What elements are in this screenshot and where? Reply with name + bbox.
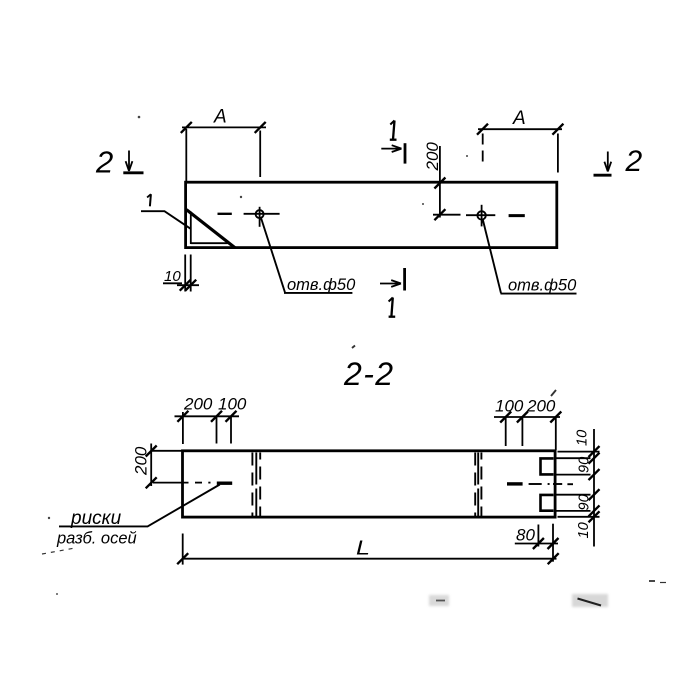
svg-text:200: 200: [423, 142, 442, 172]
svg-text:200: 200: [183, 395, 213, 414]
svg-text:100: 100: [218, 395, 247, 414]
svg-text:A: A: [213, 107, 227, 128]
svg-text:10: 10: [575, 430, 591, 446]
svg-text:L: L: [356, 538, 370, 560]
svg-text:отв.ф50: отв.ф50: [508, 277, 577, 295]
svg-text:90: 90: [577, 494, 593, 510]
svg-text:отв.ф50: отв.ф50: [287, 276, 356, 294]
svg-text:риски: риски: [70, 508, 122, 529]
svg-text:A: A: [512, 108, 526, 129]
svg-text:10: 10: [576, 522, 592, 538]
svg-text:200: 200: [526, 397, 556, 416]
svg-text:разб. осей: разб. осей: [56, 530, 137, 548]
svg-text:2: 2: [625, 145, 643, 178]
svg-text:2-2: 2-2: [343, 356, 394, 392]
svg-text:100: 100: [495, 397, 524, 416]
svg-text:80: 80: [516, 526, 535, 545]
svg-text:200: 200: [132, 446, 151, 476]
svg-text:90: 90: [577, 457, 593, 473]
svg-text:2: 2: [95, 144, 113, 179]
